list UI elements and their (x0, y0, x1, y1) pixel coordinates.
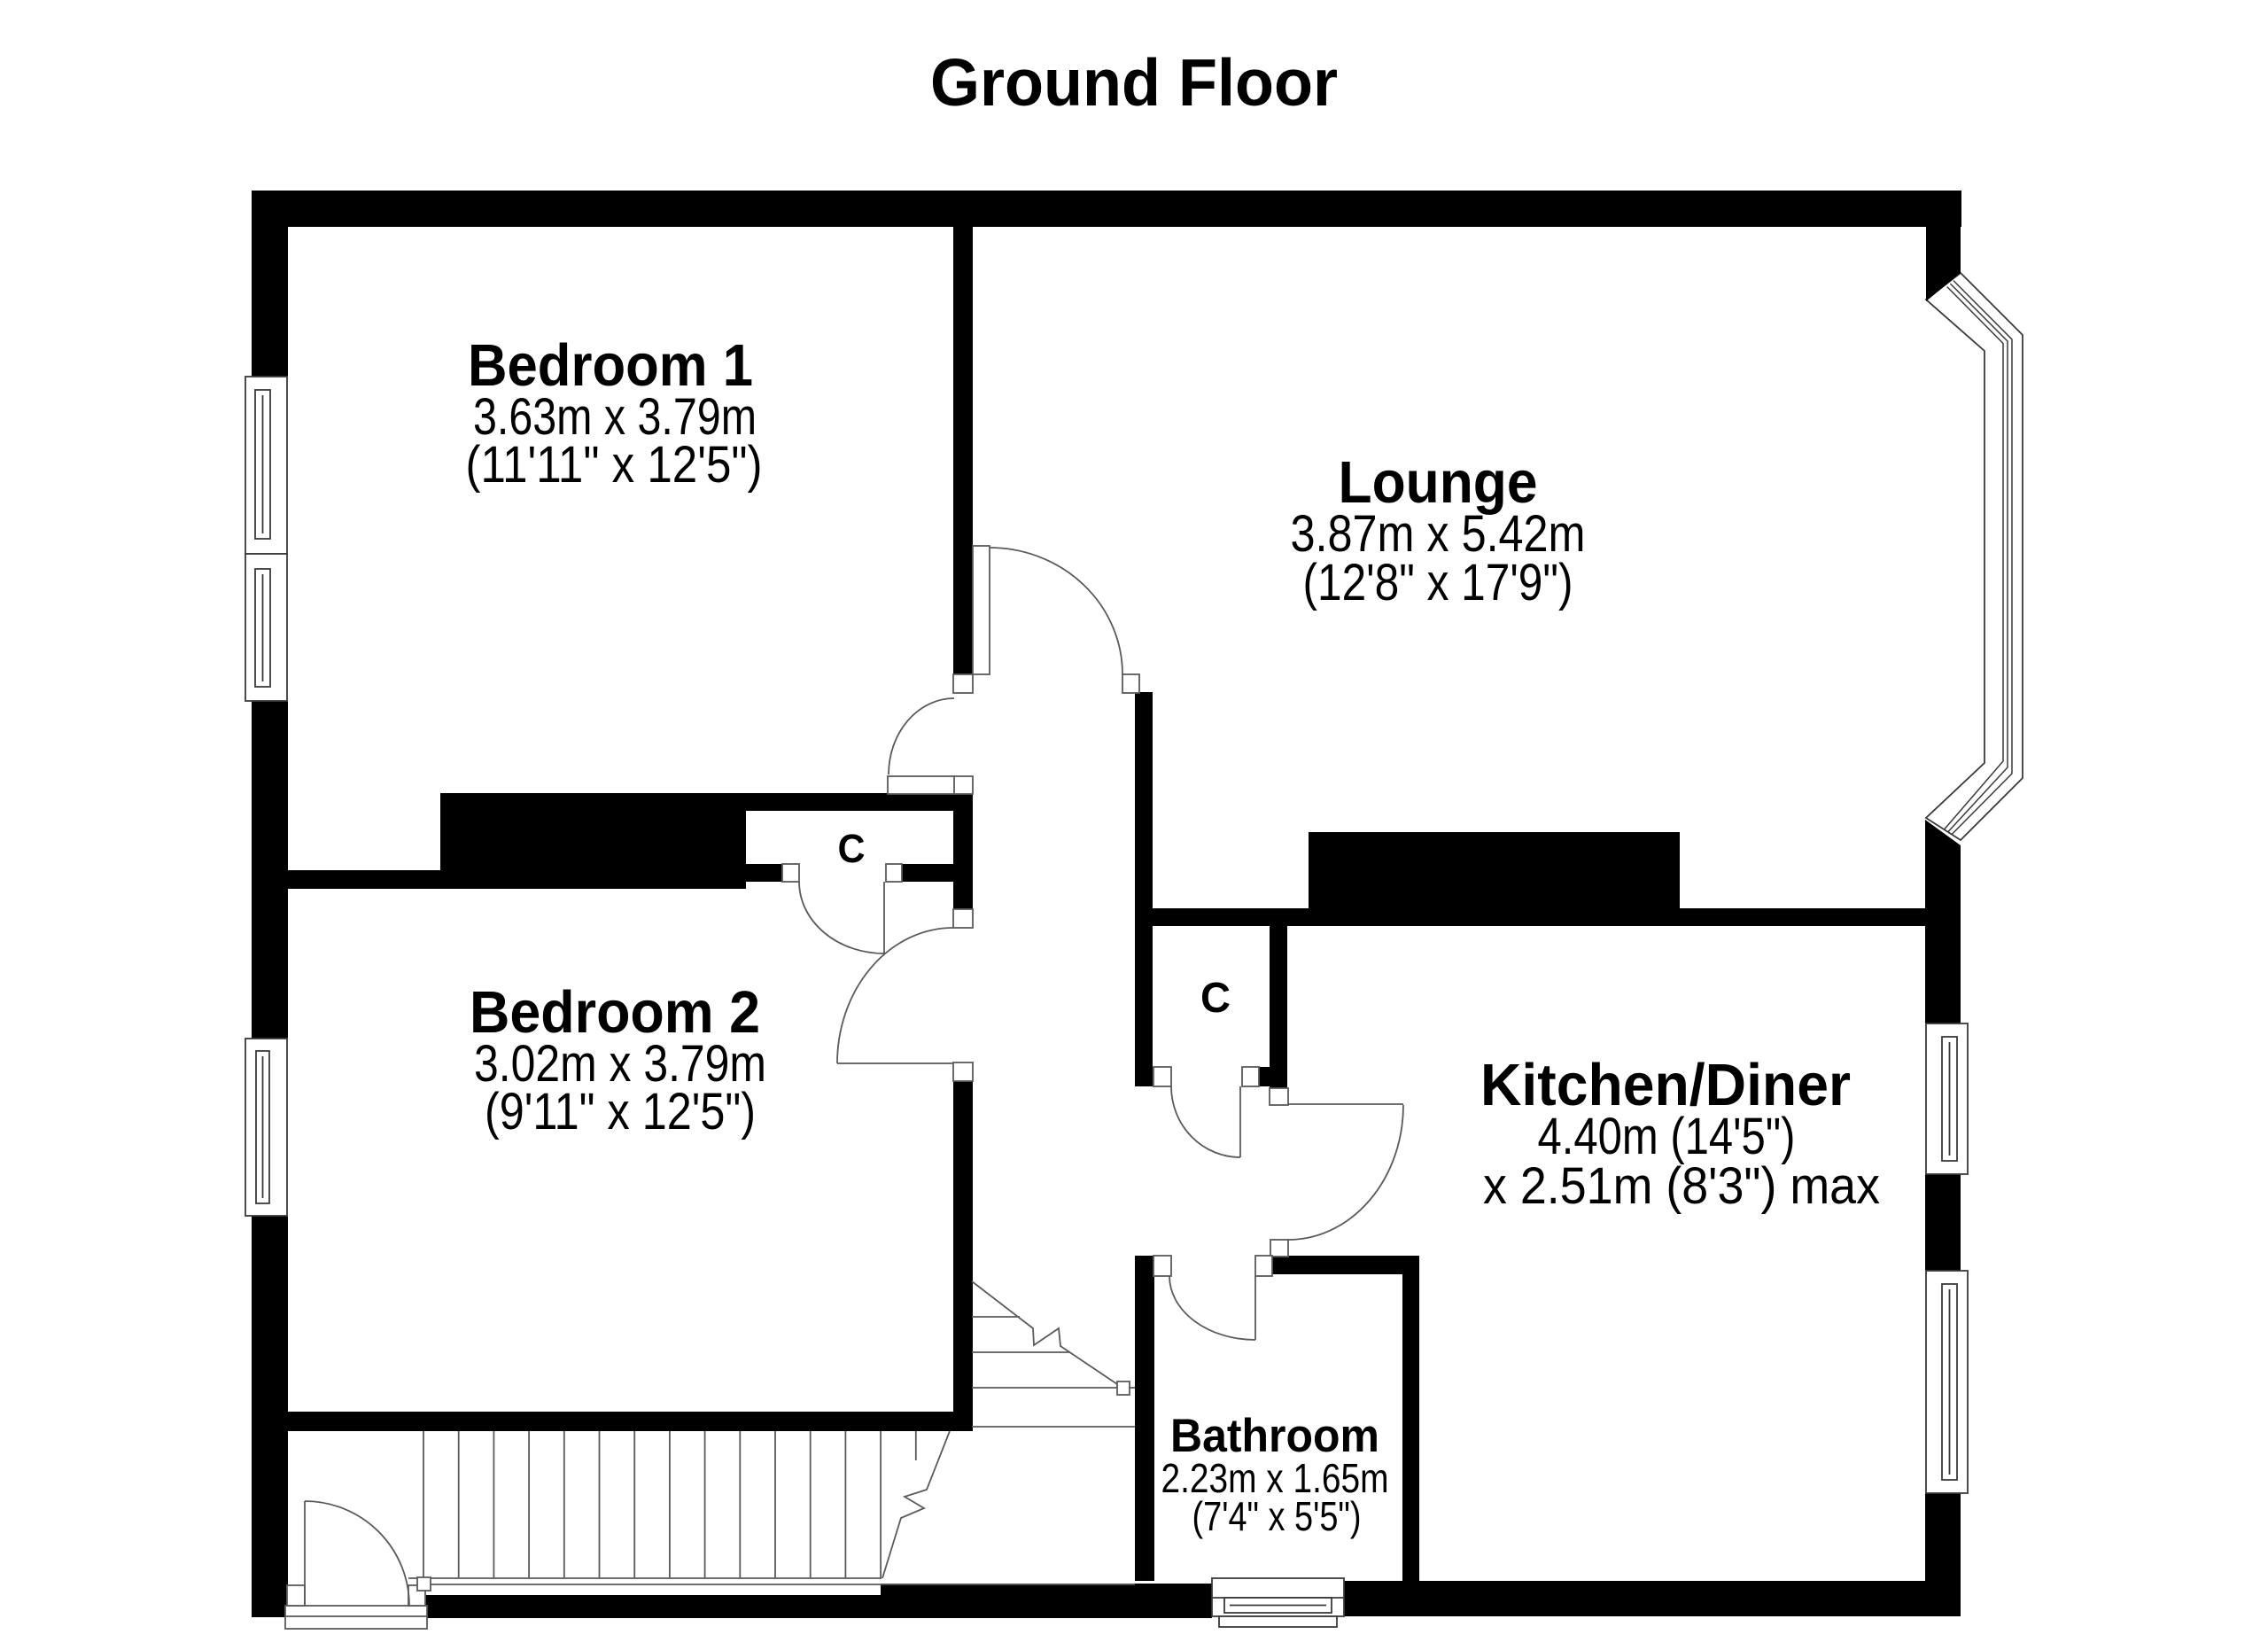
svg-text:(9'11" x 12'5"): (9'11" x 12'5") (485, 1083, 756, 1140)
svg-text:(12'8" x 17'9"): (12'8" x 17'9") (1303, 554, 1573, 611)
svg-text:x 2.51m (8'3") max: x 2.51m (8'3") max (1483, 1157, 1880, 1215)
svg-text:Ground Floor: Ground Floor (930, 45, 1338, 120)
svg-text:(11'11" x 12'5"): (11'11" x 12'5") (466, 436, 763, 494)
svg-text:C: C (1200, 975, 1231, 1022)
svg-text:(7'4" x 5'5"): (7'4" x 5'5") (1192, 1493, 1362, 1539)
svg-text:C: C (838, 826, 866, 871)
